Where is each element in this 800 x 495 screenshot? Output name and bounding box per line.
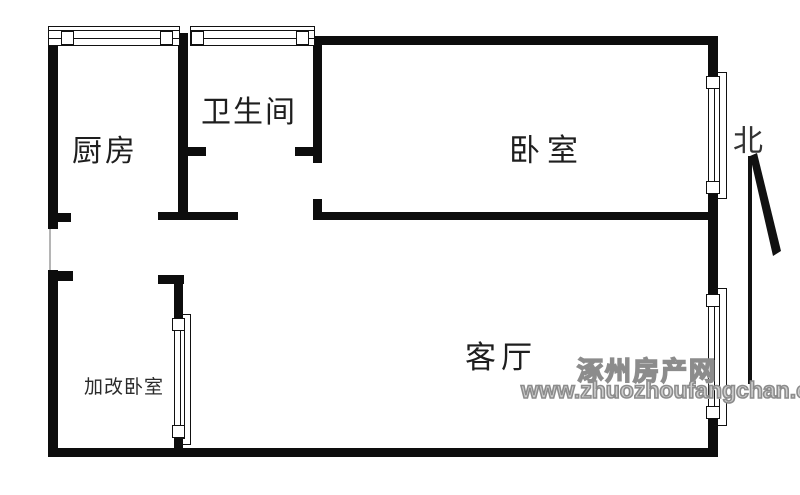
- window-endcap: [706, 406, 720, 419]
- window-endcap: [172, 425, 185, 438]
- north-arrow-icon: [735, 148, 795, 393]
- wall-bedroom-bottom: [313, 212, 718, 220]
- watermark-site-url: www.zhuozhoufangchan.com: [521, 377, 800, 404]
- window-endcap: [706, 181, 720, 194]
- window-endcap: [191, 31, 204, 45]
- room-label-bedroom: 卧室: [509, 125, 585, 170]
- window-endcap: [61, 31, 74, 45]
- window-endcap: [172, 318, 185, 331]
- floor-plan: 厨房 卫生间 卧室 客厅 加改卧室 北 涿州房产网 www.zhuozhoufa…: [0, 0, 800, 495]
- room-label-bathroom: 卫生间: [201, 87, 297, 131]
- wall-top: [313, 36, 718, 45]
- window-endcap: [706, 76, 720, 89]
- window-endcap: [296, 31, 309, 45]
- wall-left-lower: [48, 270, 58, 457]
- kitchen-door-jamb: [48, 213, 71, 222]
- bathroom-door-jamb-right: [295, 147, 313, 156]
- wall-kitchen-bathroom-divider: [178, 33, 188, 220]
- entrance-opening-line: [49, 229, 51, 270]
- room-label-kitchen: 厨房: [72, 126, 138, 170]
- bedroom-door-jamb: [313, 199, 322, 213]
- window-endcap: [160, 31, 173, 45]
- room-label-living-room: 客厅: [465, 332, 537, 377]
- entrance-door-jamb: [48, 271, 73, 281]
- wall-bathroom-right: [313, 36, 322, 163]
- wall-bottom: [48, 448, 718, 457]
- wall-left-upper: [48, 33, 58, 229]
- window-endcap: [706, 294, 720, 307]
- wall-kitchen-bottom: [158, 212, 238, 220]
- wall-right-middle: [708, 186, 718, 300]
- bedroom-window: [708, 84, 720, 188]
- bathroom-door-jamb-left: [188, 147, 206, 156]
- converted-bedroom-window: [174, 320, 185, 439]
- room-label-converted-bedroom: 加改卧室: [84, 372, 164, 399]
